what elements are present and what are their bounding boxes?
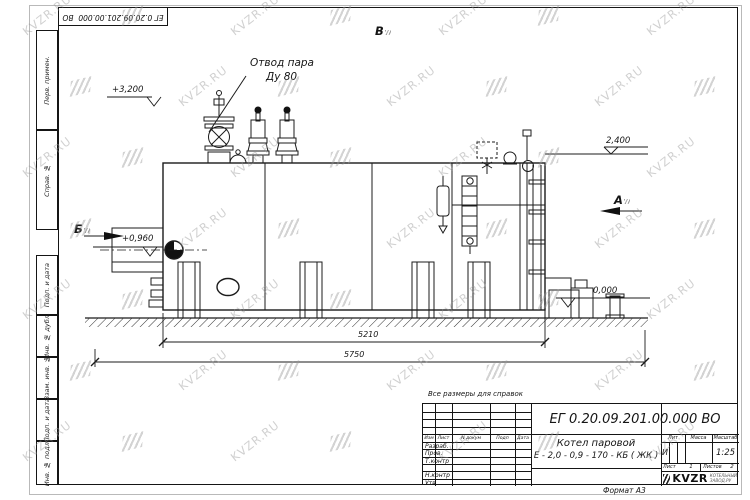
header-podp: Подп xyxy=(490,434,515,442)
row-tkontr: Т.контр xyxy=(425,458,459,465)
sheets-label: Листов xyxy=(703,463,727,471)
burner-front-box xyxy=(100,228,207,307)
title-block-designation: ЕГ 0.20.09.201.00.000 ВО xyxy=(531,404,739,434)
kvzr-logo-subtext: КОТЕЛЬНЫЙ ЗАВОД.РУ xyxy=(710,474,737,483)
row-utv: Утв. xyxy=(425,480,459,487)
header-doc: N докум xyxy=(452,434,490,442)
kvzr-logo-name: KVZR xyxy=(672,472,707,485)
sheet-value: 1 xyxy=(685,463,697,471)
title-block: Изм Лист N докум Подп Дата Разраб. Пров.… xyxy=(422,403,738,485)
top-fittings xyxy=(477,130,534,174)
drawing-sheet: ЕГ 0.20.09.201.00.000 ВО Перв. примен. С… xyxy=(0,0,750,500)
boiler-body xyxy=(163,163,545,310)
row-nkontr: Н.контр xyxy=(425,472,459,479)
ground-line xyxy=(85,318,648,327)
product-name-line2: Е - 2,0 - 0,9 - 170 - КБ ( ЖК ) xyxy=(531,450,661,462)
lit-value: И xyxy=(661,442,669,463)
header-izm: Изм xyxy=(423,434,435,442)
massa-label: Масса xyxy=(685,434,712,442)
water-gauges xyxy=(437,176,477,254)
sheets-value: 2 xyxy=(727,463,737,471)
product-name-line1: Котел паровой xyxy=(531,437,661,450)
header-date: Дата xyxy=(515,434,531,442)
dome-fitting xyxy=(230,150,246,163)
lit-label: Лит xyxy=(661,434,685,442)
view-arrows xyxy=(84,207,642,240)
sheet-label: Лист xyxy=(663,463,685,471)
downcomer-and-pump xyxy=(529,165,624,318)
header-list: Лист xyxy=(435,434,452,442)
row-prov: Пров. xyxy=(425,450,459,457)
safety-valves xyxy=(247,107,298,164)
kvzr-logo: KVZR КОТЕЛЬНЫЙ ЗАВОД.РУ xyxy=(663,472,737,485)
scale-label: Масштаб xyxy=(712,434,739,442)
row-razrab: Разраб. xyxy=(425,443,459,450)
scale-value: 1:25 xyxy=(712,442,739,463)
kvzr-logo-icon xyxy=(663,474,670,484)
kvzr-logo-sub2: ЗАВОД.РУ xyxy=(710,479,737,484)
